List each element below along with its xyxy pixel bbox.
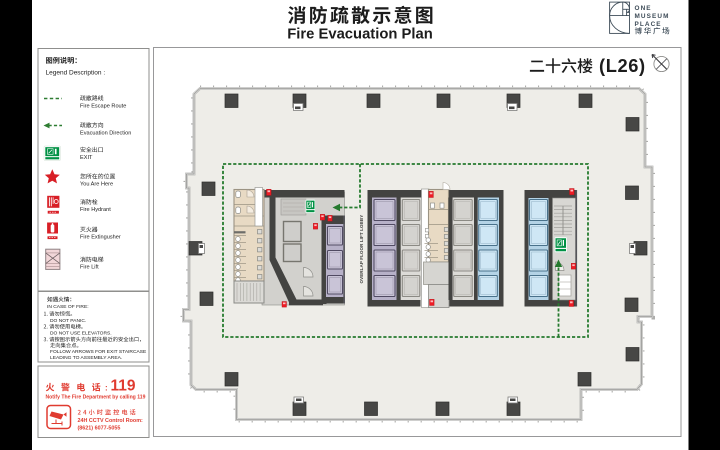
svg-text:24H CCTV Control Room:: 24H CCTV Control Room: xyxy=(78,418,143,424)
svg-text:Fire Lift: Fire Lift xyxy=(80,265,99,271)
svg-text:You Are Here: You Are Here xyxy=(80,182,113,188)
svg-text:DO NOT USE ELEVATORS.: DO NOT USE ELEVATORS. xyxy=(50,331,112,337)
svg-text:ONE: ONE xyxy=(635,5,652,12)
svg-text:119: 119 xyxy=(111,378,136,395)
svg-text:Fire Hydrant: Fire Hydrant xyxy=(80,207,111,213)
svg-text:EXIT: EXIT xyxy=(80,155,93,161)
svg-text:Fire Escape Route: Fire Escape Route xyxy=(80,103,126,109)
svg-text:MUSEUM: MUSEUM xyxy=(635,13,670,20)
svg-text:IN CASE OF FIRE:: IN CASE OF FIRE: xyxy=(47,304,89,310)
svg-text:LEADING TO ASSEMBLY AREA.: LEADING TO ASSEMBLY AREA. xyxy=(50,355,122,361)
svg-text:Fire Evacuation Plan: Fire Evacuation Plan xyxy=(287,27,433,43)
svg-text:Legend Description :: Legend Description : xyxy=(46,70,106,77)
svg-text:Evacuation Direction: Evacuation Direction xyxy=(80,130,131,136)
svg-text:(8621) 6077-5055: (8621) 6077-5055 xyxy=(78,425,121,431)
svg-text:PLACE: PLACE xyxy=(635,21,662,28)
svg-text:OVERLAP FLOOR LIFT LOBBY: OVERLAP FLOOR LIFT LOBBY xyxy=(359,215,364,284)
svg-text::: : xyxy=(105,384,108,393)
svg-text:FOLLOW ARROWS FOR EXIT STAIRCA: FOLLOW ARROWS FOR EXIT STAIRCASE xyxy=(50,349,147,355)
svg-text:(L26): (L26) xyxy=(599,55,646,76)
svg-text:Fire Extingusher: Fire Extingusher xyxy=(80,235,121,241)
svg-text:DO NOT PANIC.: DO NOT PANIC. xyxy=(50,318,86,324)
svg-text:Notify The Fire Department by: Notify The Fire Department by calling 11… xyxy=(46,394,146,400)
